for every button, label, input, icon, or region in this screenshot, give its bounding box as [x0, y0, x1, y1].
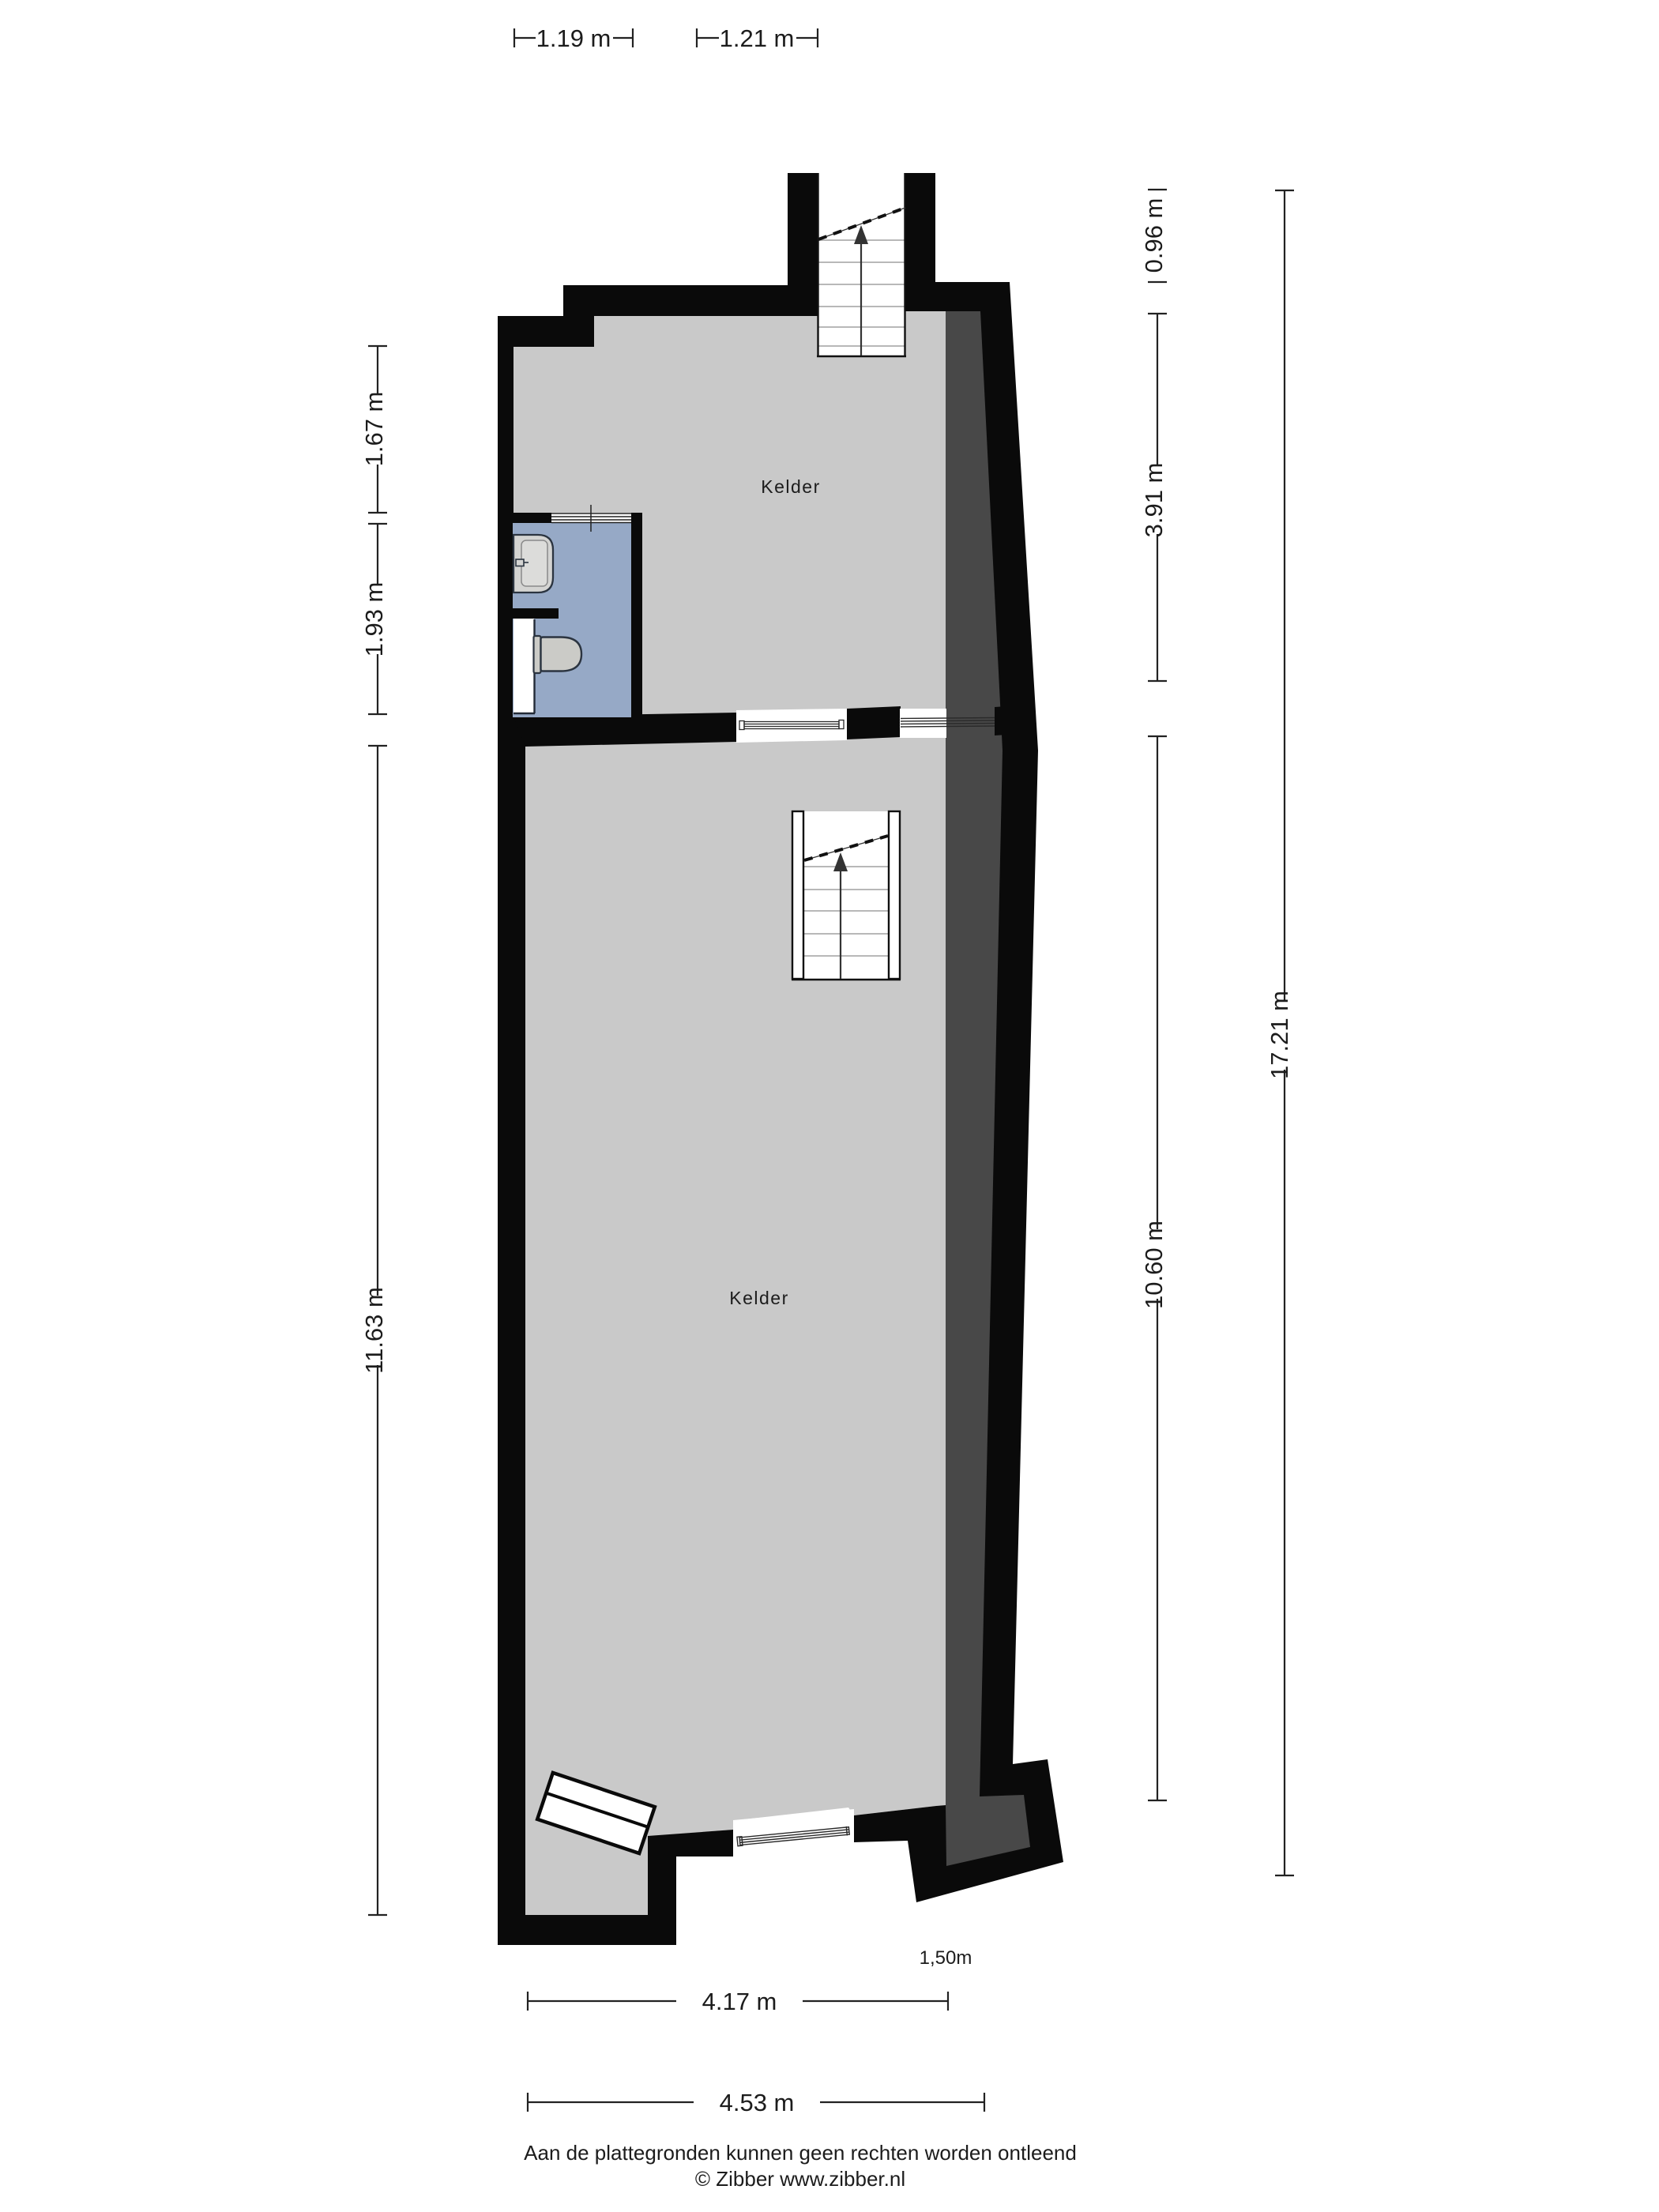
svg-text:Kelder: Kelder [761, 476, 820, 497]
svg-text:Kelder: Kelder [729, 1288, 788, 1308]
svg-text:10.60 m: 10.60 m [1140, 1221, 1168, 1309]
svg-text:17.21 m: 17.21 m [1266, 991, 1293, 1079]
svg-text:11.63 m: 11.63 m [360, 1287, 388, 1374]
svg-text:0.96 m: 0.96 m [1140, 198, 1168, 273]
svg-text:3.91 m: 3.91 m [1140, 463, 1168, 538]
svg-text:1.93 m: 1.93 m [360, 582, 388, 657]
svg-text:1.67 m: 1.67 m [360, 392, 388, 467]
svg-text:1.21 m: 1.21 m [720, 24, 795, 52]
svg-text:1.19 m: 1.19 m [536, 24, 611, 52]
svg-text:1,50m: 1,50m [920, 1947, 972, 1969]
svg-text:Aan de plattegronden kunnen ge: Aan de plattegronden kunnen geen rechten… [524, 2141, 1077, 2165]
svg-text:4.17 m: 4.17 m [702, 1988, 777, 2015]
svg-text:4.53 m: 4.53 m [720, 2089, 795, 2116]
svg-text:© Zibber www.zibber.nl: © Zibber www.zibber.nl [695, 2167, 905, 2191]
